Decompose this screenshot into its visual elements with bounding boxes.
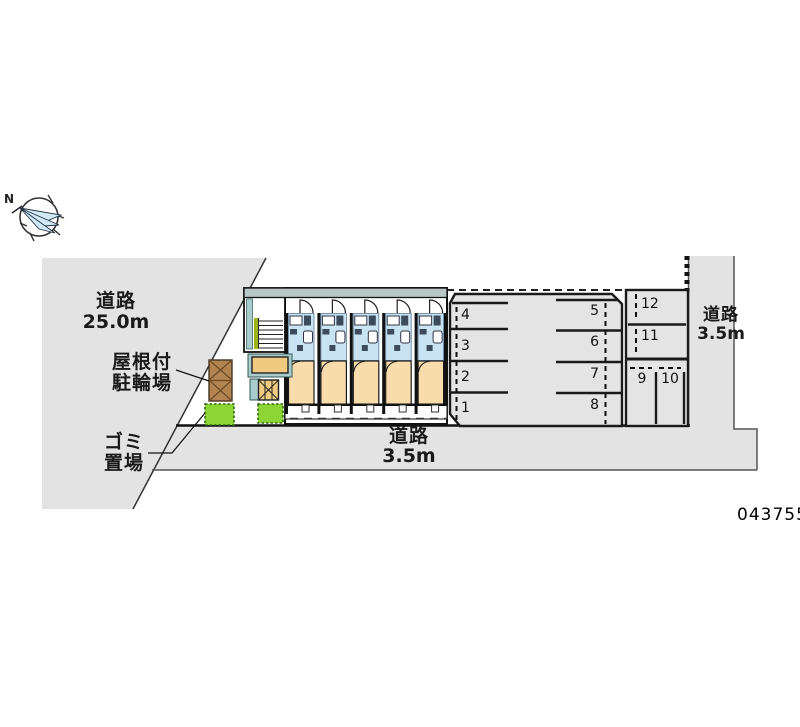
parking-space-2: 2 [461,369,475,385]
garbage-area-label: ゴミ 置場 [98,432,150,474]
entrance-porch [252,357,288,373]
compass-icon [12,195,64,241]
parking-space-5: 5 [581,303,599,319]
bottom-road-label: 道路 3.5m [368,426,450,466]
unit-5 [415,300,447,414]
parking-space-11: 11 [641,328,663,344]
bottom-road-name: 道路 [368,426,450,446]
unit-2 [317,300,349,414]
parking-space-4: 4 [461,307,475,323]
parking-space-12: 12 [641,296,663,312]
bicycle-shed-label: 屋根付 駐輪場 [104,352,180,394]
unit-3 [350,300,382,414]
parking-space-1: 1 [461,400,475,416]
grass-patch-east [258,404,283,423]
left-road-label: 道路 25.0m [73,291,159,333]
parking-space-9: 9 [634,371,650,387]
parking-space-3: 3 [461,338,475,354]
right-road-name: 道路 [691,306,751,325]
bottom-road-width: 3.5m [368,446,450,466]
compass-north-label: N [4,192,14,206]
right-road-width: 3.5m [691,325,751,344]
stair-shaft [247,299,253,349]
parking-space-8: 8 [581,397,599,413]
grass-patch-west [205,404,234,425]
right-road-area [688,256,757,470]
plan-id: 043755 [737,505,800,525]
parking-space-7: 7 [581,366,599,382]
right-road-label: 道路 3.5m [691,306,751,344]
unit-4 [382,300,414,414]
roof-edge-band [244,288,447,298]
left-road-name: 道路 [73,291,159,312]
site-plan-canvas: 道路 25.0m 屋根付 駐輪場 ゴミ 置場 道路 3.5m 道路 3.5m 4… [0,0,800,727]
left-road-width: 25.0m [73,312,159,333]
parking-space-6: 6 [581,334,599,350]
parking-space-10: 10 [660,371,680,387]
